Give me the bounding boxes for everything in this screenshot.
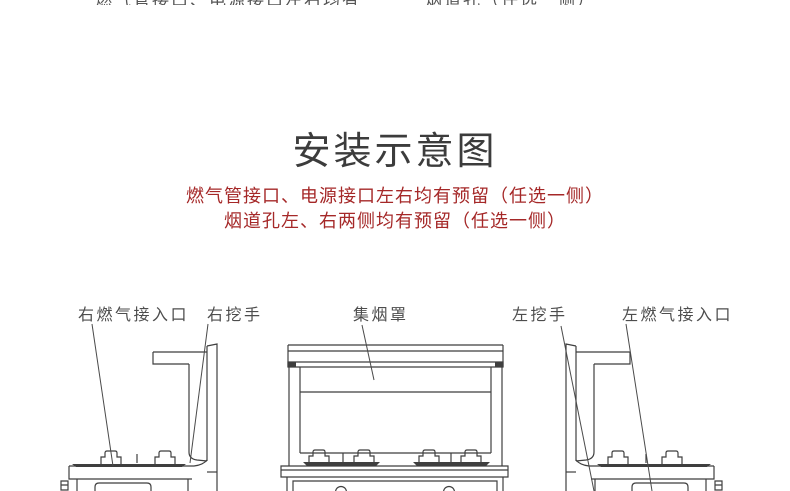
front-view — [281, 345, 508, 491]
leader-right-gas-inlet — [92, 324, 113, 466]
installation-diagram-drawing — [0, 0, 790, 491]
leader-smoke-hood — [362, 325, 374, 380]
leader-right-handle — [190, 324, 208, 463]
installation-diagram: 右燃气接入口 右挖手 集烟罩 左挖手 左燃气接入口 — [0, 0, 790, 491]
